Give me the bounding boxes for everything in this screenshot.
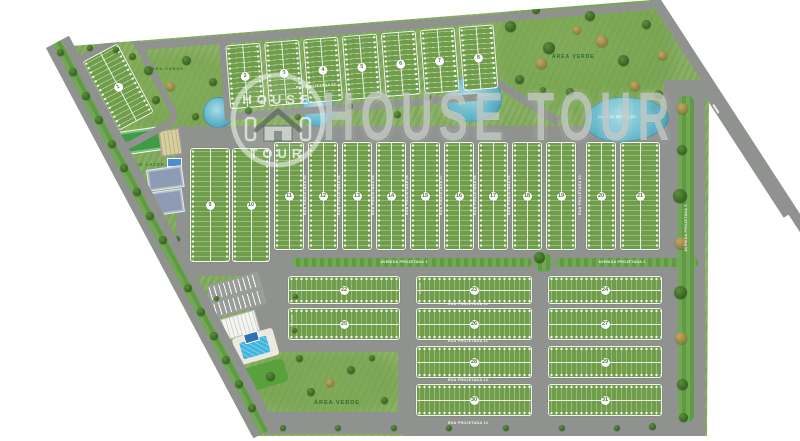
tree-icon bbox=[69, 68, 77, 76]
tree-icon bbox=[146, 212, 154, 220]
tree-icon bbox=[120, 164, 128, 172]
tree-icon bbox=[133, 188, 141, 196]
tree-icon bbox=[184, 284, 192, 292]
tree-icon bbox=[159, 236, 167, 244]
tree-icon bbox=[235, 380, 243, 388]
tree-icon bbox=[197, 308, 205, 316]
tree-icon bbox=[248, 404, 256, 412]
master-plan: LAGO DE RETENÇÃO LAGO DE RETENÇÃO ÁREA D… bbox=[0, 0, 800, 441]
boundary-roads bbox=[0, 0, 800, 441]
tree-icon bbox=[57, 49, 64, 56]
tree-icon bbox=[210, 332, 218, 340]
tree-icon bbox=[222, 356, 230, 364]
tree-icon bbox=[108, 140, 116, 148]
boulevard-trees-layer bbox=[0, 0, 800, 441]
tree-icon bbox=[82, 92, 90, 100]
tree-icon bbox=[95, 116, 103, 124]
